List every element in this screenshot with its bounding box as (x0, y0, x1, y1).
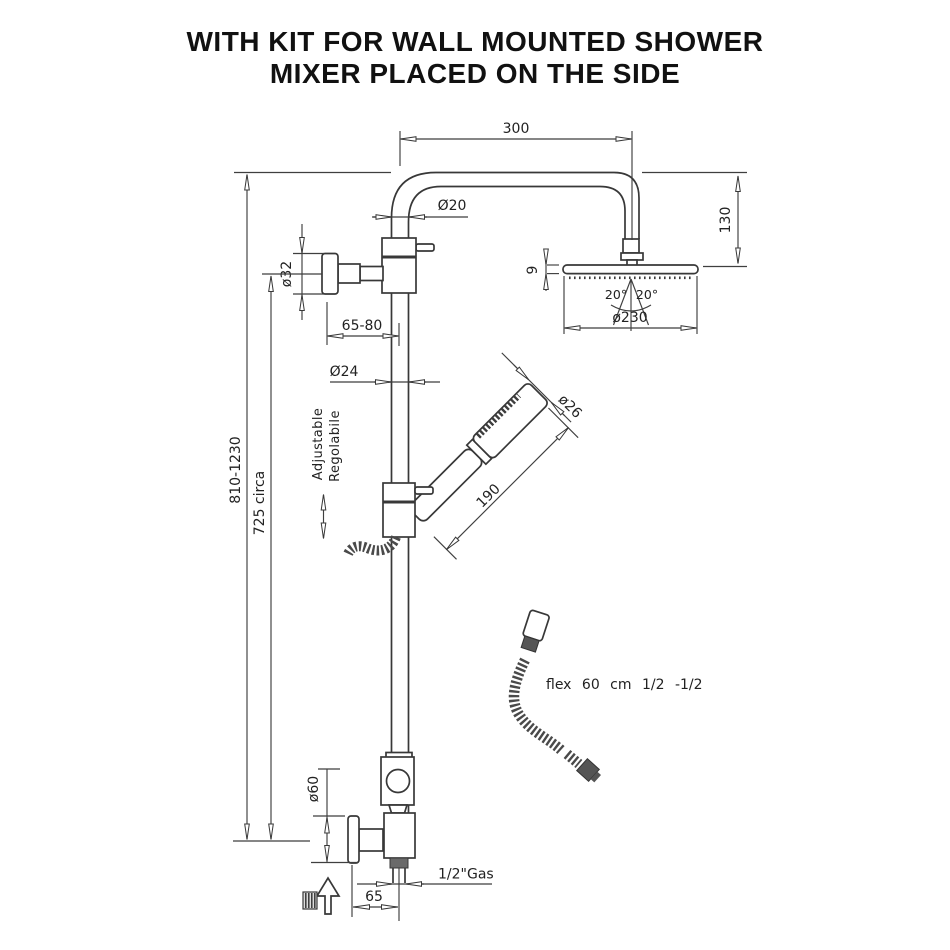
dim-overall-height-value: 810-1230 (228, 436, 244, 503)
dim-arm-length: 300 (400, 121, 632, 240)
hand-shower-hose (348, 537, 396, 554)
bracket-body (382, 238, 416, 293)
dim-inlet-offset: 65 (352, 865, 398, 917)
dim-arm-diameter: Ø20 (372, 198, 468, 217)
flex-hose: flex 60 cm 1/2 -1/2 (514, 610, 703, 785)
dim-riser-height-value: 725 circa (252, 471, 268, 535)
wall-flange (322, 254, 338, 295)
dim-head-thickness-value: 9 (525, 266, 541, 275)
adjustable-label-en: Adjustable (311, 408, 326, 480)
shower-column-diagram: 20° 20° 300 Ø20 130 (0, 0, 950, 950)
dim-handshower-length-value: 190 (473, 481, 503, 511)
slider-body (383, 483, 415, 537)
dim-inlet-offset-value: 65 (365, 889, 383, 905)
dim-riser-diameter: Ø24 (330, 364, 440, 382)
wall-section-icon (303, 892, 317, 909)
dim-head-diameter-value: ø230 (612, 310, 647, 326)
flex-hose-label: flex 60 cm 1/2 -1/2 (546, 677, 703, 693)
dim-riser-diameter-value: Ø24 (330, 364, 359, 380)
head-disc (563, 265, 698, 274)
hand-shower-head (471, 382, 549, 460)
dim-inlet-thread: 1/2"Gas (357, 867, 494, 885)
dim-head-drop-value: 130 (718, 207, 734, 234)
dim-wall-clearance: 65-80 (327, 302, 399, 346)
slider-pin (415, 487, 433, 494)
dim-head-drop: 130 (642, 173, 747, 267)
inlet-valve-body (384, 813, 415, 858)
flow-direction-arrow-icon (317, 878, 339, 914)
dim-base-flange-value: ø60 (306, 776, 322, 802)
inlet-thread-fitting (390, 858, 408, 868)
dim-spray-angle-right: 20° (636, 287, 658, 302)
dim-wall-clearance-value: 65-80 (342, 318, 383, 334)
dim-wall-flange-diameter: ø32 (279, 224, 324, 320)
dim-arm-diameter-value: Ø20 (438, 198, 467, 214)
flex-hose-tube (514, 660, 561, 750)
hand-shower-handle (408, 447, 484, 523)
diverter-knob (387, 770, 410, 793)
head-connector (623, 239, 639, 253)
dim-handshower-diameter-value: ø26 (555, 392, 585, 422)
dim-riser-height: 725 circa (252, 274, 322, 839)
dim-spray-angle-left: 20° (605, 287, 627, 302)
dim-inlet-thread-value: 1/2"Gas (438, 867, 494, 883)
bottom-wall-flange (348, 816, 359, 863)
adjustable-label: Adjustable Regolabile (311, 408, 343, 538)
top-wall-bracket (322, 238, 434, 294)
adjustable-label-it: Regolabile (328, 410, 343, 482)
bracket-pin (416, 244, 434, 251)
technical-drawing-page: WITH KIT FOR WALL MOUNTED SHOWERMIXER PL… (0, 0, 950, 950)
dim-head-thickness: 9 (525, 249, 559, 291)
dim-arm-length-value: 300 (503, 121, 530, 137)
